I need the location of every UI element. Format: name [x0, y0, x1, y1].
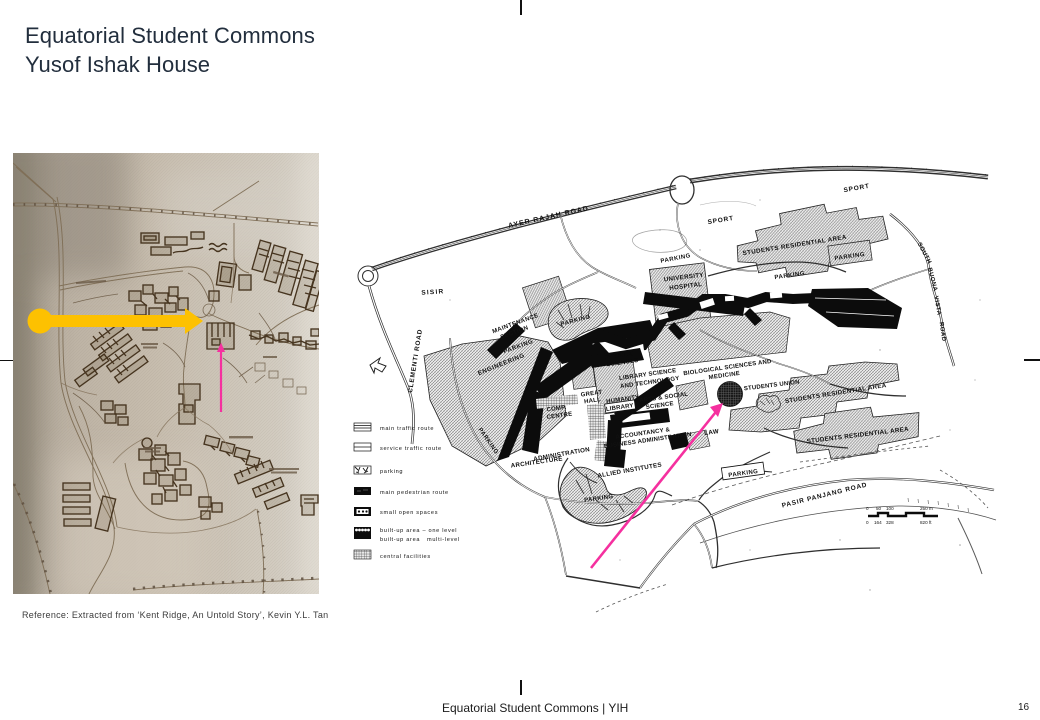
svg-text:built-up area multi-level: built-up area multi-level [380, 537, 460, 543]
svg-text:built-up area – one level: built-up area – one level [380, 528, 457, 534]
svg-text:CLEMENTI ROAD: CLEMENTI ROAD [407, 328, 424, 393]
svg-text:PARKING: PARKING [660, 253, 691, 265]
svg-text:main pedestrian route: main pedestrian route [380, 490, 449, 496]
svg-text:AYER RAJAH ROAD: AYER RAJAH ROAD [508, 205, 590, 230]
svg-text:SPORT: SPORT [843, 183, 870, 194]
svg-text:BUONA: BUONA [926, 267, 938, 292]
svg-text:0: 0 [866, 506, 869, 511]
svg-text:PARKING: PARKING [774, 271, 805, 281]
svg-text:PASIR PANJANG ROAD: PASIR PANJANG ROAD [781, 482, 868, 510]
svg-text:50: 50 [876, 506, 882, 511]
svg-text:main traffic route: main traffic route [380, 426, 434, 432]
svg-text:VISTA: VISTA [932, 296, 941, 317]
svg-text:164: 164 [874, 520, 882, 525]
svg-text:service traffic route: service traffic route [380, 446, 442, 452]
svg-text:820 ft: 820 ft [920, 520, 932, 525]
svg-text:250 m: 250 m [920, 506, 933, 511]
svg-text:ROAD: ROAD [938, 322, 947, 342]
svg-text:central facilities: central facilities [380, 554, 431, 560]
svg-text:small open spaces: small open spaces [380, 510, 438, 516]
svg-text:328: 328 [886, 520, 894, 525]
svg-text:LAW: LAW [704, 428, 720, 437]
svg-text:SOUTH: SOUTH [916, 242, 932, 266]
svg-text:0: 0 [866, 520, 869, 525]
svg-text:100: 100 [886, 506, 894, 511]
svg-text:SISIR: SISIR [421, 288, 444, 297]
svg-text:SPORT: SPORT [707, 215, 734, 226]
svg-text:parking: parking [380, 469, 403, 475]
